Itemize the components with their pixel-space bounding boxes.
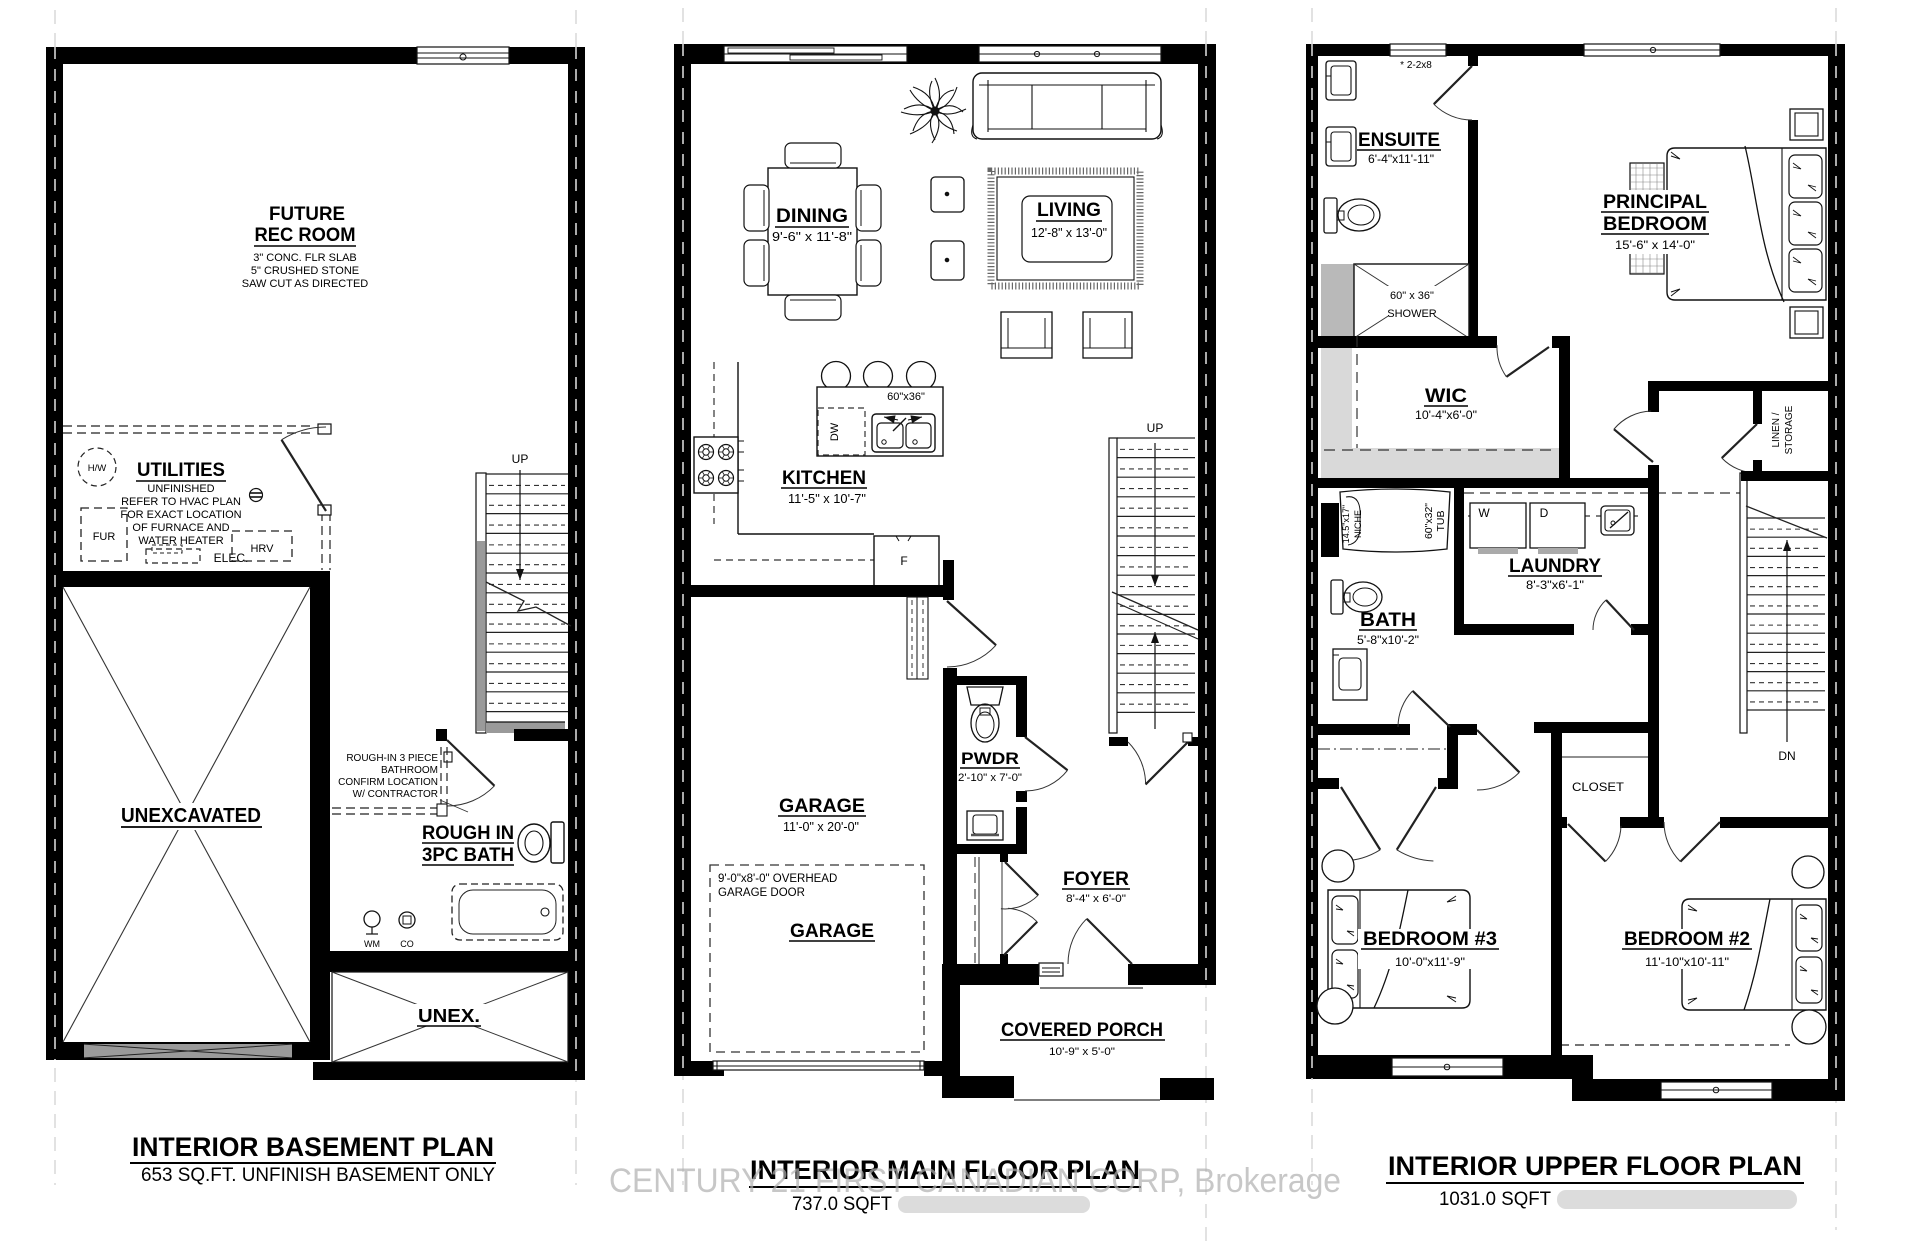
svg-text:653 SQ.FT. UNFINISH BASEMENT O: 653 SQ.FT. UNFINISH BASEMENT ONLY: [141, 1165, 495, 1186]
svg-text:PRINCIPAL: PRINCIPAL: [1603, 192, 1707, 213]
svg-text:5'-8"x10'-2": 5'-8"x10'-2": [1357, 635, 1419, 647]
svg-text:UP: UP: [512, 452, 529, 466]
svg-text:11'-0" x 20'-0": 11'-0" x 20'-0": [783, 819, 859, 834]
svg-text:3" CONC. FLR SLAB: 3" CONC. FLR SLAB: [253, 252, 357, 264]
svg-text:60"x36": 60"x36": [887, 391, 925, 403]
svg-text:PWDR: PWDR: [961, 749, 1019, 768]
svg-text:W: W: [1478, 506, 1490, 520]
svg-text:12'-8" x 13'-0": 12'-8" x 13'-0": [1031, 226, 1107, 240]
svg-text:ENSUITE: ENSUITE: [1358, 130, 1440, 151]
svg-text:11'-5" x 10'-7": 11'-5" x 10'-7": [788, 491, 866, 506]
svg-text:ROUGH-IN 3 PIECE: ROUGH-IN 3 PIECE: [346, 753, 438, 764]
svg-text:TUB: TUB: [1435, 511, 1447, 532]
svg-text:14.5"x17": 14.5"x17": [1341, 505, 1351, 543]
svg-text:STORAGE: STORAGE: [1784, 405, 1795, 454]
svg-text:1031.0 SQFT: 1031.0 SQFT: [1439, 1189, 1551, 1210]
svg-text:LINEN /: LINEN /: [1771, 412, 1782, 447]
svg-text:SHOWER: SHOWER: [1387, 308, 1437, 320]
svg-text:INTERIOR UPPER FLOOR PLAN: INTERIOR UPPER FLOOR PLAN: [1388, 1151, 1802, 1181]
svg-text:10'-4"x6'-0": 10'-4"x6'-0": [1415, 410, 1477, 422]
svg-text:HRV: HRV: [250, 543, 274, 555]
svg-text:H/W: H/W: [88, 463, 107, 474]
svg-text:CO: CO: [400, 939, 414, 949]
svg-text:CLOSET: CLOSET: [1572, 782, 1624, 794]
svg-text:DINING: DINING: [776, 206, 848, 227]
svg-text:FUR: FUR: [93, 531, 116, 543]
svg-text:F: F: [900, 554, 907, 568]
svg-text:60"x32": 60"x32": [1423, 503, 1435, 539]
svg-text:10'-0"x11'-9": 10'-0"x11'-9": [1395, 955, 1465, 969]
svg-text:OF FURNACE AND: OF FURNACE AND: [132, 522, 229, 534]
svg-text:BEDROOM: BEDROOM: [1603, 214, 1707, 235]
svg-text:2'-10" x 7'-0": 2'-10" x 7'-0": [958, 772, 1022, 784]
svg-text:8'-4" x 6'-0": 8'-4" x 6'-0": [1066, 893, 1126, 905]
svg-text:9'-6" x 11'-8": 9'-6" x 11'-8": [772, 229, 852, 244]
svg-text:ELEC.: ELEC.: [214, 551, 249, 565]
svg-text:FOYER: FOYER: [1063, 869, 1129, 890]
svg-text:W/ CONTRACTOR: W/ CONTRACTOR: [353, 789, 438, 800]
svg-text:9'-0"x8'-0" OVERHEAD: 9'-0"x8'-0" OVERHEAD: [718, 873, 837, 885]
svg-text:5" CRUSHED STONE: 5" CRUSHED STONE: [251, 265, 359, 277]
svg-text:REFER TO HVAC PLAN: REFER TO HVAC PLAN: [121, 496, 241, 508]
svg-text:GARAGE DOOR: GARAGE DOOR: [718, 887, 805, 899]
svg-text:LIVING: LIVING: [1037, 200, 1101, 221]
svg-text:DW: DW: [829, 422, 841, 441]
svg-text:GARAGE: GARAGE: [790, 921, 874, 942]
svg-text:COVERED PORCH: COVERED PORCH: [1001, 1020, 1163, 1041]
svg-text:D: D: [1540, 506, 1549, 520]
svg-text:FUTURE: FUTURE: [269, 204, 345, 225]
svg-text:WM: WM: [364, 939, 380, 949]
svg-text:UNEXCAVATED: UNEXCAVATED: [121, 805, 261, 827]
svg-text:6'-4"x11'-11": 6'-4"x11'-11": [1368, 154, 1434, 166]
svg-text:15'-6" x 14'-0": 15'-6" x 14'-0": [1615, 238, 1695, 252]
svg-text:LAUNDRY: LAUNDRY: [1509, 556, 1601, 577]
svg-text:* 2-2x8: * 2-2x8: [1400, 60, 1432, 71]
svg-text:FOR EXACT LOCATION: FOR EXACT LOCATION: [120, 509, 241, 521]
svg-text:3PC BATH: 3PC BATH: [422, 845, 514, 866]
svg-text:UP: UP: [1147, 421, 1164, 435]
svg-text:BATHROOM: BATHROOM: [381, 765, 438, 776]
svg-text:UNFINISHED: UNFINISHED: [147, 483, 214, 495]
svg-text:INTERIOR BASEMENT PLAN: INTERIOR BASEMENT PLAN: [132, 1132, 494, 1162]
svg-text:GARAGE: GARAGE: [779, 796, 865, 817]
svg-text:DN: DN: [1778, 749, 1795, 763]
svg-text:UNEX.: UNEX.: [418, 1006, 480, 1026]
svg-text:60" x 36": 60" x 36": [1390, 290, 1434, 302]
svg-text:KITCHEN: KITCHEN: [782, 468, 866, 489]
svg-text:CENTURY 21 FIRST CANADIAN CORP: CENTURY 21 FIRST CANADIAN CORP, Brokerag…: [609, 1162, 1341, 1200]
svg-text:CONFIRM LOCATION: CONFIRM LOCATION: [338, 777, 438, 788]
svg-text:8'-3"x6'-1": 8'-3"x6'-1": [1526, 580, 1584, 592]
svg-text:SAW CUT AS DIRECTED: SAW CUT AS DIRECTED: [242, 278, 369, 290]
svg-text:11'-10"x10'-11": 11'-10"x10'-11": [1645, 955, 1729, 969]
svg-text:NICHE: NICHE: [1353, 510, 1363, 538]
svg-text:10'-9" x 5'-0": 10'-9" x 5'-0": [1049, 1046, 1115, 1058]
svg-text:ROUGH IN: ROUGH IN: [422, 823, 514, 844]
svg-text:UTILITIES: UTILITIES: [137, 460, 225, 481]
svg-text:BEDROOM #2: BEDROOM #2: [1624, 929, 1750, 950]
svg-text:WIC: WIC: [1425, 386, 1467, 407]
svg-text:BATH: BATH: [1360, 610, 1416, 631]
svg-text:REC ROOM: REC ROOM: [255, 225, 356, 246]
svg-text:BEDROOM #3: BEDROOM #3: [1363, 929, 1497, 950]
